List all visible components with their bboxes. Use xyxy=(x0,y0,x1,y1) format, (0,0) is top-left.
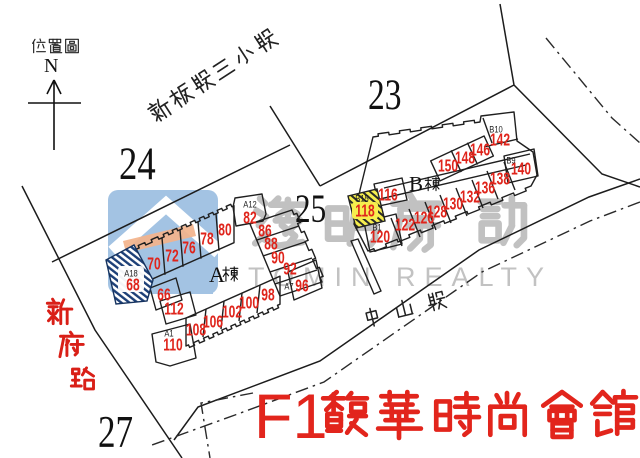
svg-text:A1: A1 xyxy=(164,328,173,339)
svg-text:122: 122 xyxy=(395,215,415,235)
svg-text:72: 72 xyxy=(165,246,178,266)
svg-text:A: A xyxy=(209,262,225,287)
svg-text:B15: B15 xyxy=(355,193,369,204)
svg-text:A18: A18 xyxy=(124,268,138,279)
svg-text:66: 66 xyxy=(157,285,170,305)
svg-text:82: 82 xyxy=(243,208,256,228)
svg-text:24: 24 xyxy=(119,138,156,190)
svg-text:96: 96 xyxy=(295,276,308,296)
svg-text:108: 108 xyxy=(186,320,206,340)
svg-text:F1: F1 xyxy=(254,382,328,452)
svg-text:23: 23 xyxy=(368,72,402,119)
svg-text:78: 78 xyxy=(200,229,214,249)
svg-text:A7: A7 xyxy=(284,281,293,292)
svg-text:A12: A12 xyxy=(243,199,257,210)
svg-text:B: B xyxy=(409,172,423,196)
svg-text:98: 98 xyxy=(261,285,275,305)
svg-text:80: 80 xyxy=(218,220,231,240)
svg-text:N: N xyxy=(44,55,58,77)
svg-text:27: 27 xyxy=(98,407,133,457)
svg-text:B10: B10 xyxy=(489,124,503,135)
svg-text:25: 25 xyxy=(295,186,326,231)
svg-text:B1: B1 xyxy=(372,222,381,233)
svg-text:150: 150 xyxy=(438,156,458,176)
svg-text:138: 138 xyxy=(490,169,510,189)
svg-text:102: 102 xyxy=(222,302,242,322)
svg-text:70: 70 xyxy=(147,254,160,274)
svg-text:76: 76 xyxy=(182,238,195,258)
svg-text:116: 116 xyxy=(378,185,397,205)
svg-text:B9: B9 xyxy=(506,155,515,166)
svg-text:118: 118 xyxy=(355,201,375,221)
